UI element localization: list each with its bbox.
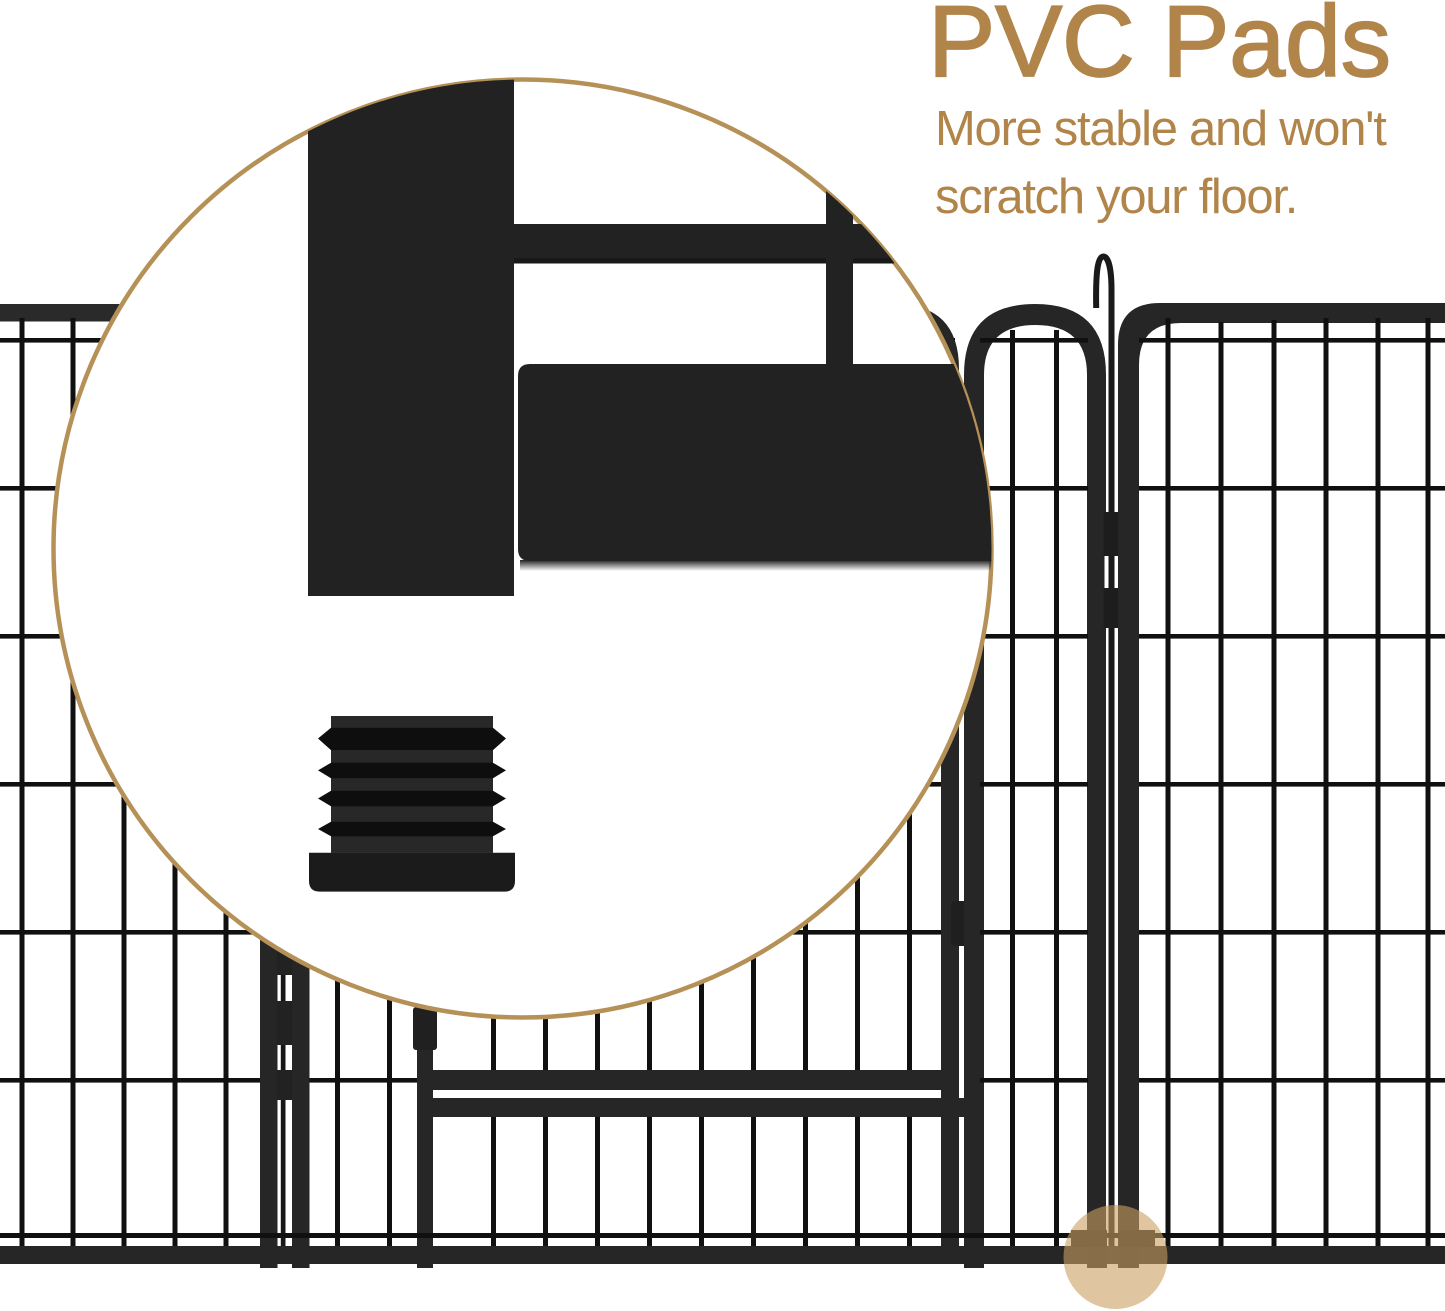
svg-text:PVC Pads: PVC Pads [928,0,1391,98]
svg-text:More stable and won't: More stable and won't [935,102,1387,156]
svg-text:scratch your floor.: scratch your floor. [935,170,1297,224]
